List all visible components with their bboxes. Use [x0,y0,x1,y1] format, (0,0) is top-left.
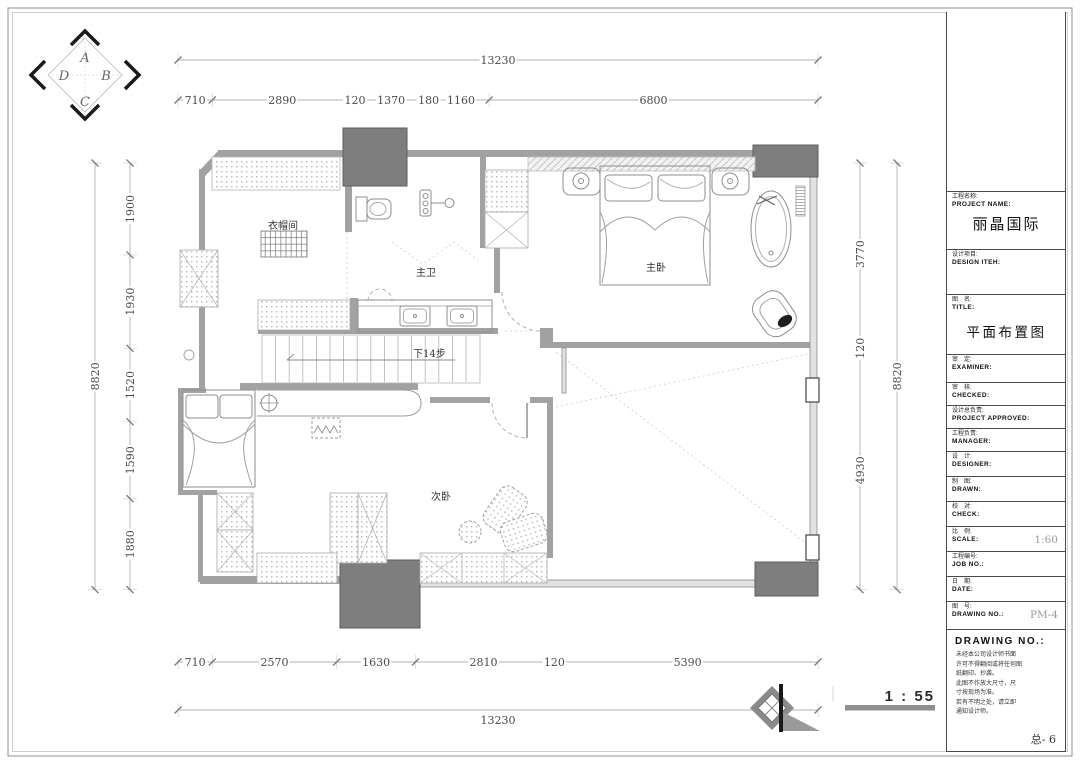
svg-text:1880: 1880 [124,530,137,558]
svg-text:2570: 2570 [261,656,289,669]
dimension-label: 1900 [124,194,137,225]
field-label-cn: 图 名: [952,297,1065,304]
label-second-bedroom: 次卧 [431,490,451,503]
dimension-label: 1590 [124,445,137,476]
svg-text:1520: 1520 [124,371,137,399]
page-border [8,8,1072,756]
svg-text:1590: 1590 [124,446,137,474]
dimension-label: 2810 [468,656,499,669]
field-label-en: PROJECT APPROVED: [952,415,1065,423]
sheet-number: 总- 6 [1031,731,1056,747]
field-label-cn: 审 定: [952,357,1065,364]
compass-letter-c: C [80,95,90,110]
field-label-en: DESIGN ITEH: [952,259,1065,267]
thin-walls-layer [420,157,817,587]
field-label-cn: 设 计: [952,454,1065,461]
svg-text:4930: 4930 [854,456,867,484]
notes-header: DRAWING NO.: [955,636,1065,647]
title-block-row: 工程编号:JOB NO.: [947,552,1065,577]
field-label-en: DATE: [952,586,1065,594]
floor-plan-canvas: A B C D [0,0,1080,764]
field-value: 丽晶国际 [952,213,1061,234]
field-value: 平面布置图 [952,321,1061,341]
svg-text:1160: 1160 [447,94,475,107]
title-block-row: 审 核:CHECKED: [947,383,1065,406]
compass-rose: A B C D [31,31,139,119]
title-block-row: 比 例:SCALE:1:60 [947,527,1065,552]
svg-text:1900: 1900 [124,195,137,223]
wall-fixture [184,350,194,360]
lounge-chair [747,286,801,342]
dimension-label: 1630 [361,656,392,669]
notes-line: 未经本公司设计师书面 [956,651,1065,661]
field-label-cn: 校 对: [952,504,1065,511]
closet-rug [261,231,307,257]
svg-text:710: 710 [185,656,206,669]
field-value: PM-4 [1030,609,1058,621]
double-vanity [358,300,492,332]
dimension-label: 120 [854,336,867,360]
svg-text:120: 120 [544,656,565,669]
svg-text:180: 180 [418,94,439,107]
field-label-cn: 工程编号: [952,554,1065,561]
field-label-cn: 设计总负责: [952,408,1065,415]
scale-label: 1 : 55 [885,688,935,705]
dimension-label: 5390 [672,656,703,669]
svg-text:3770: 3770 [854,240,867,268]
svg-text:5390: 5390 [674,656,702,669]
compass-letter-a: A [79,51,89,66]
field-label-en: TITLE: [952,304,1065,312]
field-label-en: DESIGNER: [952,461,1065,469]
field-value: 1:60 [1034,534,1058,546]
title-block-row: 图 名:TITLE:平面布置图 [947,295,1065,355]
stair-cabinet [258,300,350,330]
dimension-label: 120 [343,94,367,107]
title-block-row: 制 图:DRAWN: [947,477,1065,502]
svg-text:120: 120 [854,338,867,359]
ac-unit [312,418,340,438]
notes-line: 纸翻印、抄袭。 [956,670,1065,680]
compass-letter-d: D [58,69,70,84]
dimension-label: 710 [183,656,207,669]
svg-text:8820: 8820 [891,362,904,390]
title-block-row: 设 计:DESIGNER: [947,452,1065,477]
label-stair-note: 下14步 [413,348,446,360]
dimension-label: 710 [183,94,207,107]
field-label-en: CHECKED: [952,392,1065,400]
entry-closet [485,170,528,248]
notes-line: 此图不作放大尺寸，尺 [956,680,1065,690]
svg-text:2810: 2810 [469,656,497,669]
svg-text:710: 710 [185,94,206,107]
dimension-label: 2570 [259,656,290,669]
svg-text:8820: 8820 [89,362,102,390]
hall-counter [257,390,421,416]
dimension-label: 1370 [376,94,407,107]
dimension-label: 6800 [638,94,669,107]
label-master-bath: 主卫 [416,267,436,279]
drawing-sheet: A B C D [0,0,1080,764]
svg-text:13230: 13230 [481,54,516,67]
notes-line: 许可不得翻阅或将任何图 [956,661,1065,671]
field-label-cn: 工程负责: [952,431,1065,438]
title-block-blank [947,12,1065,192]
notes-line: 若有不明之处，请立即 [956,699,1065,709]
room-labels: 衣帽间 主卫 主卧 次卧 下14步 [268,219,666,503]
dimension-label: 2890 [267,94,298,107]
low-cabinet-band [257,553,337,583]
field-label-cn: 设计项目: [952,252,1065,259]
title-block-row: 工程名称:PROJECT NAME:丽晶国际 [947,192,1065,250]
label-cloakroom: 衣帽间 [268,219,298,232]
dimension-label: 1520 [124,370,137,401]
title-block-row: 设计项目:DESIGN ITEH: [947,250,1065,295]
title-block-notes: DRAWING NO.:未经本公司设计师书面许可不得翻阅或将任何图纸翻印、抄袭。… [947,636,1065,752]
dimension-label: 8820 [891,361,904,392]
svg-text:13230: 13230 [481,714,516,727]
dimension-label: 1160 [446,94,477,107]
title-block-row: 校 对:CHECK: [947,502,1065,527]
dimension-label: 3770 [854,239,867,270]
sofa-group [459,482,550,554]
compass-letter-b: B [100,69,111,84]
title-block: 工程名称:PROJECT NAME:丽晶国际设计项目:DESIGN ITEH:图… [946,12,1066,752]
bathtub [751,191,791,267]
label-master-bedroom: 主卧 [646,261,666,274]
title-block-row: 审 定:EXAMINER: [947,355,1065,383]
notes-line: 寸按现场为准。 [956,689,1065,699]
toilet [356,197,391,221]
svg-text:2890: 2890 [268,94,296,107]
dimension-label: 180 [416,94,440,107]
field-label-en: CHECK: [952,511,1065,519]
field-label-en: DRAWN: [952,486,1065,494]
field-label-en: EXAMINER: [952,364,1065,372]
wardrobe-left [217,493,253,572]
svg-text:1930: 1930 [124,288,137,316]
scale-figure: 1 : 55 [750,684,935,732]
staircase [262,335,480,383]
field-label-en: PROJECT NAME: [952,201,1065,209]
field-label-en: JOB NO.: [952,561,1065,569]
shower-panel [420,190,454,216]
shaft-cabinet [180,250,218,307]
field-label-cn: 日 期: [952,579,1065,586]
dimension-label: 1880 [124,529,137,560]
svg-text:1630: 1630 [362,656,390,669]
svg-text:120: 120 [345,94,366,107]
svg-text:6800: 6800 [640,94,668,107]
dimension-label: 120 [542,656,566,669]
field-label-cn: 工程名称: [952,194,1065,201]
svg-text:1370: 1370 [377,94,405,107]
field-label-en: MANAGER: [952,438,1065,446]
field-label-cn: 审 核: [952,385,1065,392]
second-bed [183,390,255,487]
dimension-label: 4930 [854,455,867,486]
title-block-row: 工程负责:MANAGER: [947,429,1065,452]
notes-line: 通知设计师。 [956,708,1065,718]
dimension-label: 13230 [480,54,517,67]
title-block-row: 日 期:DATE: [947,577,1065,602]
towel-radiator [796,186,805,216]
dimension-label: 13230 [481,714,516,727]
dimension-label: 1930 [124,286,137,317]
title-block-row: 图 号:DRAWING NO.:PM-4 [947,602,1065,630]
nightstand-right [712,168,749,195]
dimension-label: 8820 [89,361,102,392]
field-label-cn: 制 图: [952,479,1065,486]
nightstand-left [563,168,600,195]
company-logo-icon [750,684,820,732]
title-block-row: 设计总负责:PROJECT APPROVED: [947,406,1065,429]
wardrobe-band [420,553,547,583]
wardrobe-right [330,493,387,563]
